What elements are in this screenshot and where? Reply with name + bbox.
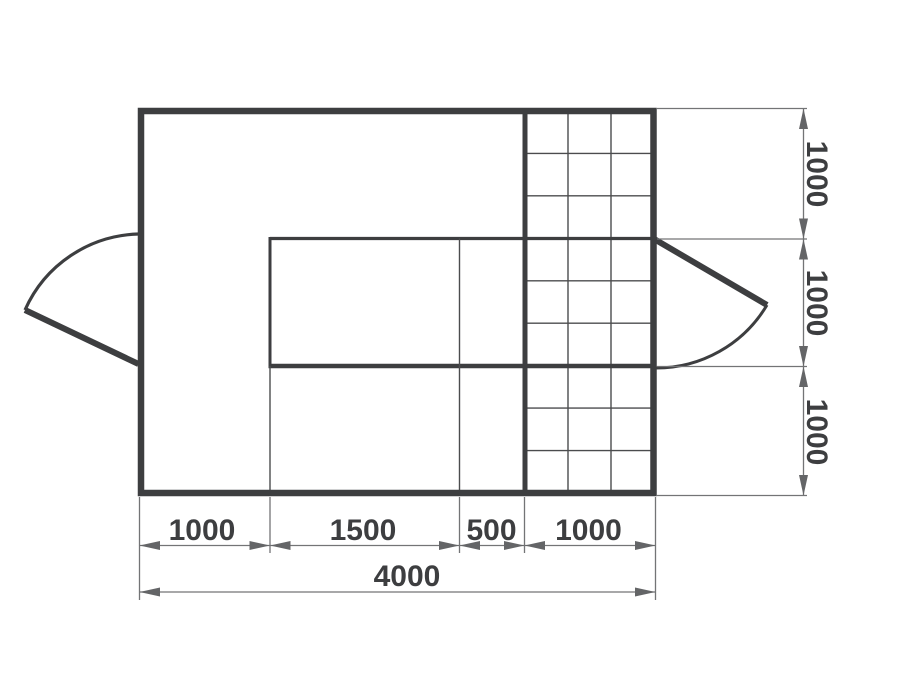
left-door-swing-arc: [25, 234, 139, 310]
drawing-page: 1000 1500 500 1000 4000 1000 1000 1000: [0, 0, 900, 675]
dimensions-right: 1000 1000 1000: [657, 109, 833, 496]
dimension-arrow: [140, 541, 161, 550]
floor-plan-canvas: 1000 1500 500 1000 4000 1000 1000 1000: [0, 0, 900, 675]
dimension-arrow: [635, 541, 656, 550]
dimension-arrow: [635, 588, 656, 597]
dimension-arrow: [799, 475, 808, 496]
right-door-swing-arc: [655, 305, 767, 368]
dimension-arrow: [270, 541, 291, 550]
inner-partition: [269, 237, 655, 493]
dimension-label: 1000: [800, 399, 833, 466]
dimension-label: 1500: [330, 514, 397, 547]
outer-wall: [141, 111, 654, 493]
dimension-arrow: [525, 541, 546, 550]
dimension-label: 1000: [800, 141, 833, 208]
dimension-label: 500: [466, 514, 516, 547]
dimension-arrow: [799, 219, 808, 240]
tiled-area-grid: [525, 109, 654, 494]
dimension-label: 1000: [555, 514, 622, 547]
dimension-arrow: [799, 367, 808, 388]
dimension-arrow: [250, 541, 271, 550]
dimension-arrow: [140, 588, 161, 597]
right-door: [655, 240, 767, 369]
dimension-arrow: [799, 239, 808, 260]
right-door-leaf: [655, 240, 767, 306]
dimension-label: 1000: [800, 270, 833, 337]
left-door: [25, 234, 139, 364]
room-outline: [141, 111, 654, 493]
left-door-leaf: [25, 310, 139, 364]
dimension-arrow: [799, 346, 808, 367]
dimension-label-total: 4000: [374, 560, 441, 593]
dimensions-bottom: 1000 1500 500 1000 4000: [140, 497, 656, 600]
dimension-arrow: [439, 541, 460, 550]
dimension-label: 1000: [169, 514, 236, 547]
dimension-arrow: [799, 109, 808, 130]
